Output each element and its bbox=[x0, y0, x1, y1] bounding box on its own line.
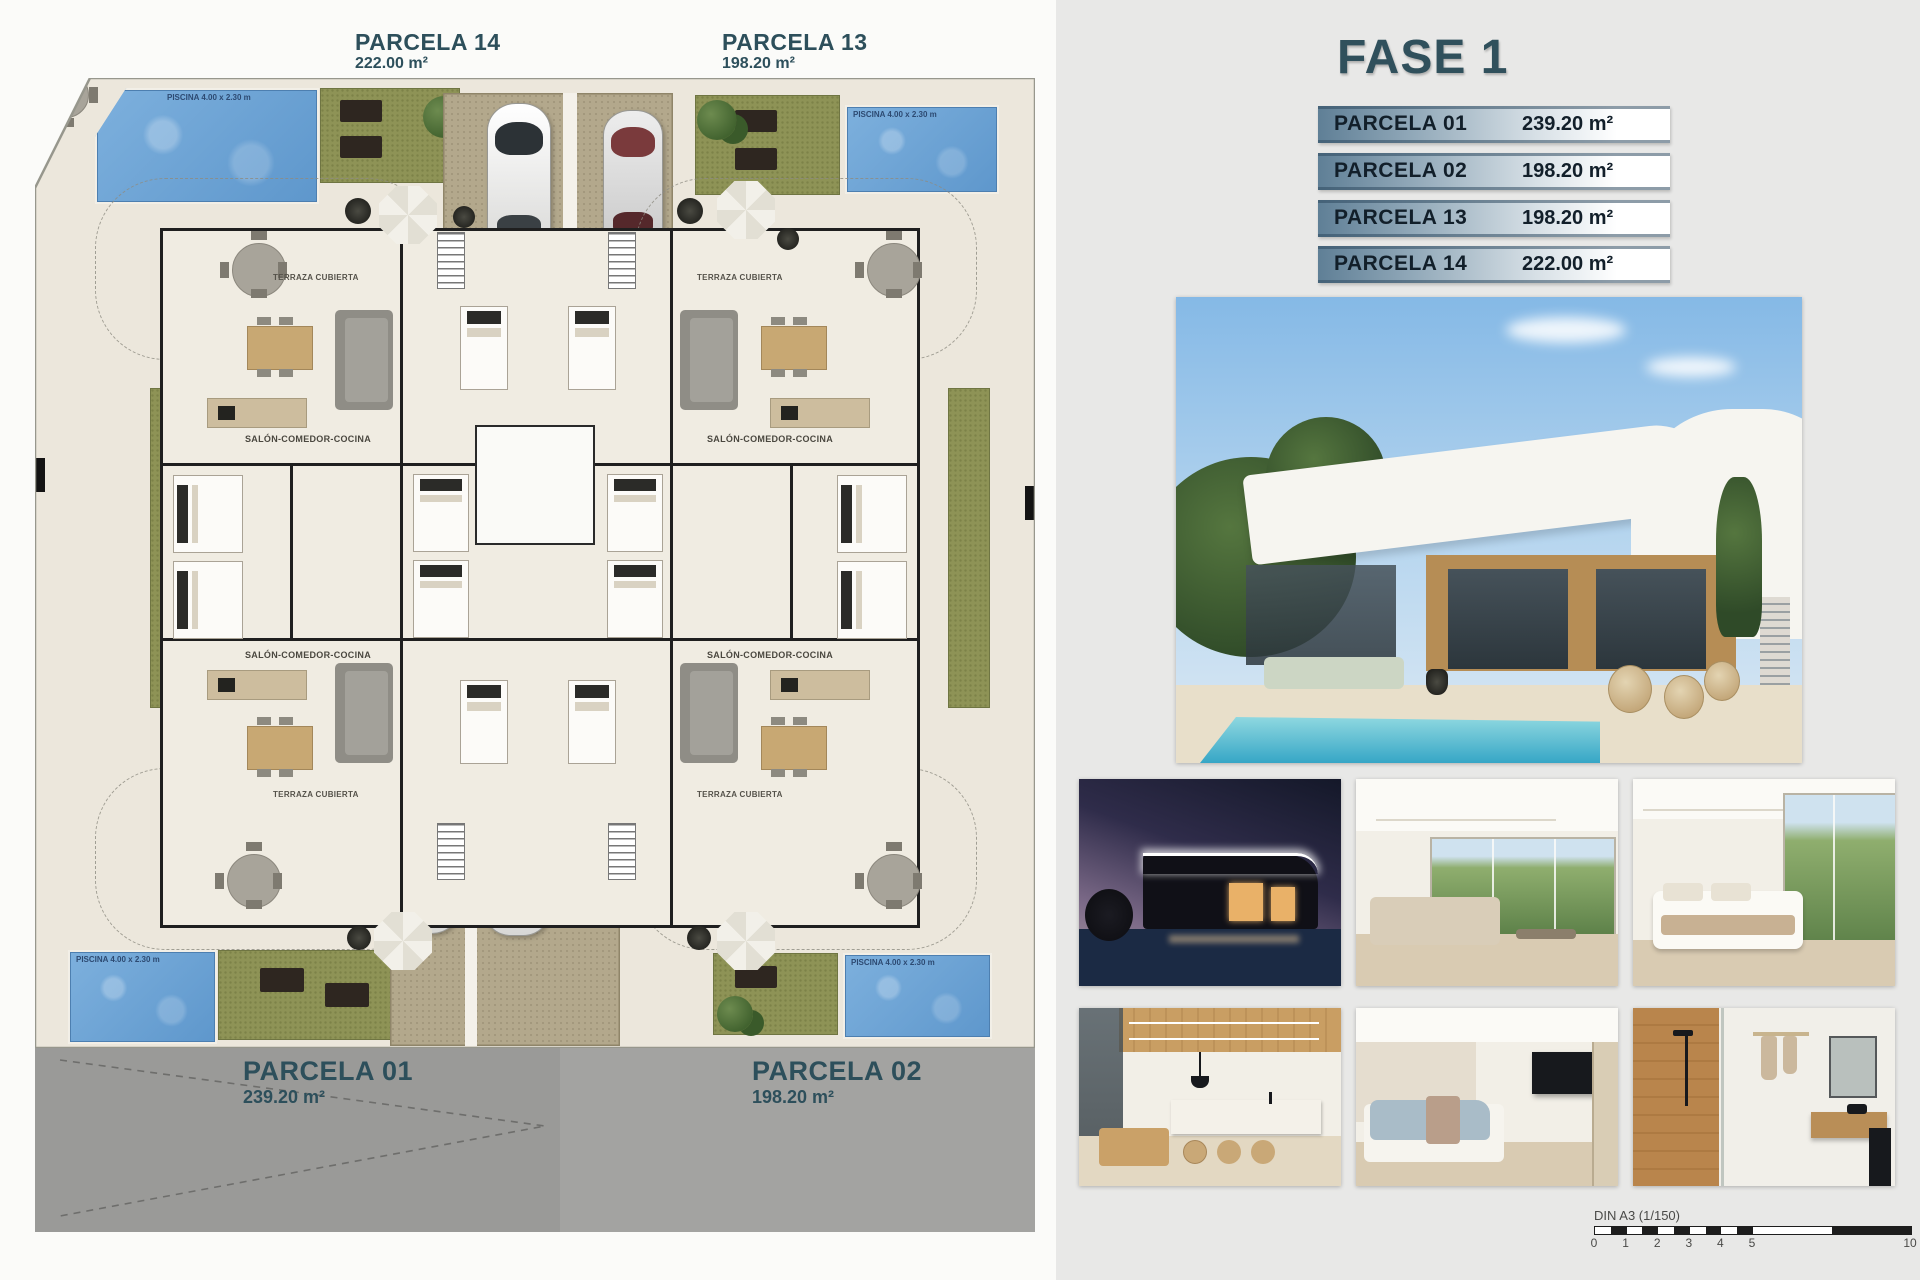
swimming-pool bbox=[1200, 717, 1600, 763]
bed bbox=[460, 306, 508, 390]
umbrella-icon bbox=[717, 181, 775, 239]
tick-5: 5 bbox=[1749, 1236, 1756, 1250]
bed bbox=[837, 475, 907, 553]
parcel-13-title: PARCELA 13 198.20 m² bbox=[722, 30, 868, 73]
parcel-14-title: PARCELA 14 222.00 m² bbox=[355, 30, 501, 73]
dining-table bbox=[1099, 1128, 1169, 1166]
tick-0: 0 bbox=[1591, 1236, 1598, 1250]
patio-table bbox=[867, 243, 921, 297]
photo-night-exterior bbox=[1079, 779, 1341, 986]
wood-ceiling bbox=[1119, 1008, 1341, 1052]
pool-label: PISCINA 4.00 x 2.30 m bbox=[76, 955, 160, 964]
wardrobe bbox=[1592, 1042, 1618, 1186]
shower-head bbox=[1673, 1030, 1693, 1036]
room-label-terrace: TERRAZA CUBIERTA bbox=[273, 273, 359, 282]
row-parcel-label: PARCELA 14 bbox=[1334, 252, 1467, 276]
interior-wall bbox=[160, 638, 920, 641]
cloud bbox=[1646, 357, 1736, 377]
bed bbox=[837, 561, 907, 639]
pool-reflection bbox=[1169, 935, 1299, 943]
phase-title: FASE 1 bbox=[1337, 30, 1508, 85]
room-label-living: SALÓN-COMEDOR-COCINA bbox=[707, 650, 833, 660]
shower-column bbox=[1685, 1036, 1688, 1106]
photo-kitchen-dining bbox=[1079, 1008, 1341, 1186]
bed-throw bbox=[1426, 1096, 1460, 1144]
photo-bathroom bbox=[1633, 1008, 1895, 1186]
room-label-terrace: TERRAZA CUBIERTA bbox=[697, 790, 783, 799]
pendant-lamp bbox=[1199, 1052, 1201, 1078]
ceiling bbox=[1356, 1008, 1618, 1042]
row-parcel-label: PARCELA 02 bbox=[1334, 159, 1467, 183]
plant bbox=[453, 206, 475, 228]
coffee-table bbox=[1516, 929, 1576, 939]
sun-lounger bbox=[340, 100, 382, 122]
site-plan: PISCINA 4.00 x 2.30 m PISCINA 4.00 x 2.3… bbox=[35, 78, 1035, 1048]
window-mullion bbox=[1554, 839, 1556, 935]
photo-bedroom-tv bbox=[1356, 1008, 1618, 1186]
bed-throw bbox=[1661, 915, 1795, 935]
bed bbox=[460, 680, 508, 764]
row-parcel-area: 198.20 m² bbox=[1522, 207, 1613, 230]
parcel-13-name: PARCELA 13 bbox=[722, 30, 868, 55]
pool-bottom-right: PISCINA 4.00 x 2.30 m bbox=[843, 953, 992, 1039]
patio-table bbox=[867, 854, 921, 908]
patio-table bbox=[43, 72, 89, 118]
parcel-01-area: 239.20 m² bbox=[243, 1087, 413, 1108]
led-strip bbox=[1129, 1038, 1319, 1040]
vessel-sink bbox=[1847, 1104, 1867, 1114]
tree bbox=[697, 100, 737, 140]
room-label-terrace: TERRAZA CUBIERTA bbox=[273, 790, 359, 799]
street-area: PARCELA 01 239.20 m² PARCELA 02 198.20 m… bbox=[35, 1048, 1035, 1232]
rattan-chair bbox=[1704, 661, 1740, 701]
table-row: PARCELA 14 222.00 m² bbox=[1318, 246, 1670, 283]
sun-lounger bbox=[325, 983, 369, 1007]
bed bbox=[413, 560, 469, 638]
tick-4: 4 bbox=[1717, 1236, 1724, 1250]
pool-bottom-left: PISCINA 4.00 x 2.30 m bbox=[68, 950, 217, 1044]
row-parcel-area: 222.00 m² bbox=[1522, 253, 1613, 276]
interior-wall bbox=[790, 463, 793, 638]
interior-wall bbox=[670, 228, 673, 928]
pool-label: PISCINA 4.00 x 2.30 m bbox=[851, 958, 935, 967]
parcel-01-name: PARCELA 01 bbox=[243, 1056, 413, 1087]
plant-silhouette bbox=[1085, 889, 1133, 941]
parcel-14-name: PARCELA 14 bbox=[355, 30, 501, 55]
glass-wall bbox=[1246, 565, 1396, 665]
bed bbox=[607, 560, 663, 638]
towel-rail bbox=[1753, 1032, 1809, 1036]
sofa bbox=[335, 663, 393, 763]
floor-plan-sheet: PARCELA 14 222.00 m² PARCELA 13 198.20 m… bbox=[0, 0, 1056, 1280]
table-row: PARCELA 01 239.20 m² bbox=[1318, 106, 1670, 143]
scale-tick-labels: 0 1 2 3 4 5 10 bbox=[1594, 1235, 1910, 1249]
kitchen-counter bbox=[770, 398, 870, 428]
sun-lounger bbox=[735, 110, 777, 132]
table-row: PARCELA 13 198.20 m² bbox=[1318, 200, 1670, 237]
umbrella-icon bbox=[374, 912, 432, 970]
patio-table bbox=[232, 243, 286, 297]
tick-10: 10 bbox=[1903, 1236, 1916, 1250]
planter bbox=[1426, 669, 1448, 695]
sun-lounger bbox=[260, 968, 304, 992]
row-parcel-area: 198.20 m² bbox=[1522, 160, 1613, 183]
sofa bbox=[680, 310, 738, 410]
bed bbox=[173, 561, 243, 639]
stairs bbox=[437, 823, 465, 880]
rattan-chair bbox=[1664, 675, 1704, 719]
entrance-gate bbox=[35, 458, 45, 492]
plant bbox=[687, 926, 711, 950]
towel bbox=[1761, 1036, 1777, 1080]
central-courtyard bbox=[475, 425, 595, 545]
sun-lounger bbox=[735, 148, 777, 170]
bed bbox=[568, 306, 616, 390]
storage-unit bbox=[1869, 1128, 1891, 1186]
parcel-01-title: PARCELA 01 239.20 m² bbox=[243, 1056, 413, 1108]
parcel-02-name: PARCELA 02 bbox=[752, 1056, 922, 1087]
room-label-living: SALÓN-COMEDOR-COCINA bbox=[245, 650, 371, 660]
lit-window bbox=[1229, 883, 1263, 921]
plant bbox=[777, 228, 799, 250]
tick-1: 1 bbox=[1622, 1236, 1629, 1250]
towel bbox=[1783, 1036, 1797, 1074]
dining-table bbox=[761, 726, 827, 770]
outdoor-sofa bbox=[1264, 657, 1404, 689]
led-strip bbox=[1129, 1022, 1319, 1024]
sofa bbox=[680, 663, 738, 763]
tv-screen bbox=[1532, 1052, 1596, 1094]
parcel-02-title: PARCELA 02 198.20 m² bbox=[752, 1056, 922, 1108]
kitchen-island bbox=[1171, 1100, 1321, 1134]
faucet bbox=[1269, 1092, 1272, 1104]
bed bbox=[413, 474, 469, 552]
parcel-02-area: 198.20 m² bbox=[752, 1087, 922, 1108]
cove-light bbox=[1643, 809, 1793, 811]
pillows bbox=[1663, 883, 1703, 901]
scale-bar: DIN A3 (1/150) 0 1 2 3 4 5 10 bbox=[1594, 1208, 1910, 1249]
ceiling bbox=[1356, 779, 1618, 831]
mirror bbox=[1829, 1036, 1877, 1098]
umbrella-icon bbox=[717, 912, 775, 970]
tick-2: 2 bbox=[1654, 1236, 1661, 1250]
scale-label: DIN A3 (1/150) bbox=[1594, 1208, 1910, 1223]
stairs bbox=[608, 232, 636, 289]
glass-door bbox=[1448, 569, 1568, 669]
kitchen-counter bbox=[207, 670, 307, 700]
parcel-14-area: 222.00 m² bbox=[355, 55, 501, 73]
plant bbox=[347, 926, 371, 950]
photo-living-room bbox=[1356, 779, 1618, 986]
umbrella-icon bbox=[379, 186, 437, 244]
cloud bbox=[1506, 317, 1626, 343]
dining-table bbox=[761, 326, 827, 370]
room-label-terrace: TERRAZA CUBIERTA bbox=[697, 273, 783, 282]
pool-label: PISCINA 4.00 x 2.30 m bbox=[853, 110, 937, 119]
sun-lounger bbox=[340, 136, 382, 158]
row-parcel-label: PARCELA 01 bbox=[1334, 112, 1467, 136]
plant bbox=[345, 198, 371, 224]
sofa bbox=[1370, 897, 1500, 945]
grass-strip-right bbox=[948, 388, 990, 708]
cove-light bbox=[1376, 819, 1556, 821]
scale-bar-graphic bbox=[1594, 1226, 1912, 1235]
dining-table bbox=[247, 726, 313, 770]
interior-wall bbox=[290, 463, 293, 638]
room-label-living: SALÓN-COMEDOR-COCINA bbox=[707, 434, 833, 444]
entrance-gate bbox=[1025, 486, 1035, 520]
kitchen-counter bbox=[207, 398, 307, 428]
pool-label: PISCINA 4.00 x 2.30 m bbox=[167, 93, 251, 102]
table-row: PARCELA 02 198.20 m² bbox=[1318, 153, 1670, 190]
interior-wall bbox=[400, 228, 403, 928]
pine-tree bbox=[1716, 477, 1762, 637]
stairs bbox=[608, 823, 636, 880]
room-label-living: SALÓN-COMEDOR-COCINA bbox=[245, 434, 371, 444]
lit-window bbox=[1271, 887, 1295, 921]
kitchen-counter bbox=[770, 670, 870, 700]
row-parcel-label: PARCELA 13 bbox=[1334, 206, 1467, 230]
glass-partition bbox=[1721, 1008, 1724, 1186]
bed bbox=[173, 475, 243, 553]
bed bbox=[607, 474, 663, 552]
bed bbox=[568, 680, 616, 764]
window-mullion bbox=[1833, 795, 1835, 947]
parcel-13-area: 198.20 m² bbox=[722, 55, 868, 73]
row-parcel-area: 239.20 m² bbox=[1522, 113, 1613, 136]
photo-hero-villa bbox=[1176, 297, 1802, 763]
rattan-chair bbox=[1608, 665, 1652, 713]
tick-3: 3 bbox=[1685, 1236, 1692, 1250]
tree bbox=[717, 996, 753, 1032]
patio-table bbox=[227, 854, 281, 908]
sofa bbox=[335, 310, 393, 410]
glass-door bbox=[1596, 569, 1706, 669]
photo-bedroom-terrace bbox=[1633, 779, 1895, 986]
dining-table bbox=[247, 326, 313, 370]
stairs bbox=[437, 232, 465, 289]
led-roof-light bbox=[1143, 853, 1318, 874]
plant bbox=[677, 198, 703, 224]
bar-stools bbox=[1183, 1140, 1207, 1164]
